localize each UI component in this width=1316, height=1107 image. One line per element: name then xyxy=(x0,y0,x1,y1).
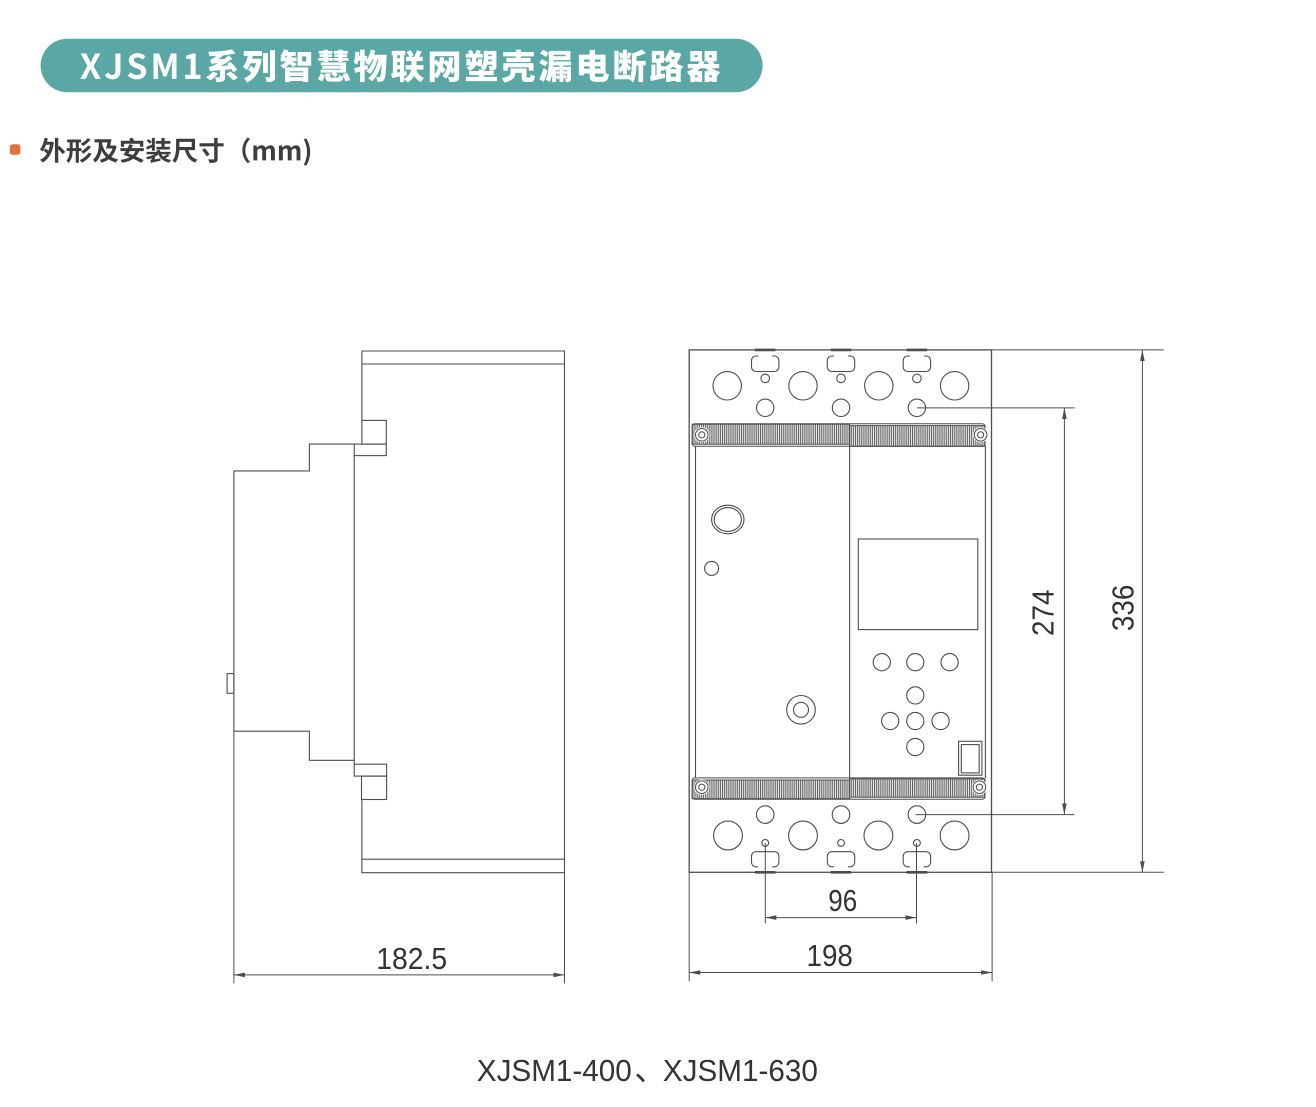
svg-text:274: 274 xyxy=(1027,590,1061,637)
svg-text:182.5: 182.5 xyxy=(376,942,447,976)
svg-text:96: 96 xyxy=(828,884,857,918)
svg-text:XJSM1-400: XJSM1-400 xyxy=(477,1053,632,1088)
svg-text:198: 198 xyxy=(806,939,853,973)
svg-text:XJSM1-630: XJSM1-630 xyxy=(663,1053,818,1088)
svg-text:336: 336 xyxy=(1107,585,1141,632)
